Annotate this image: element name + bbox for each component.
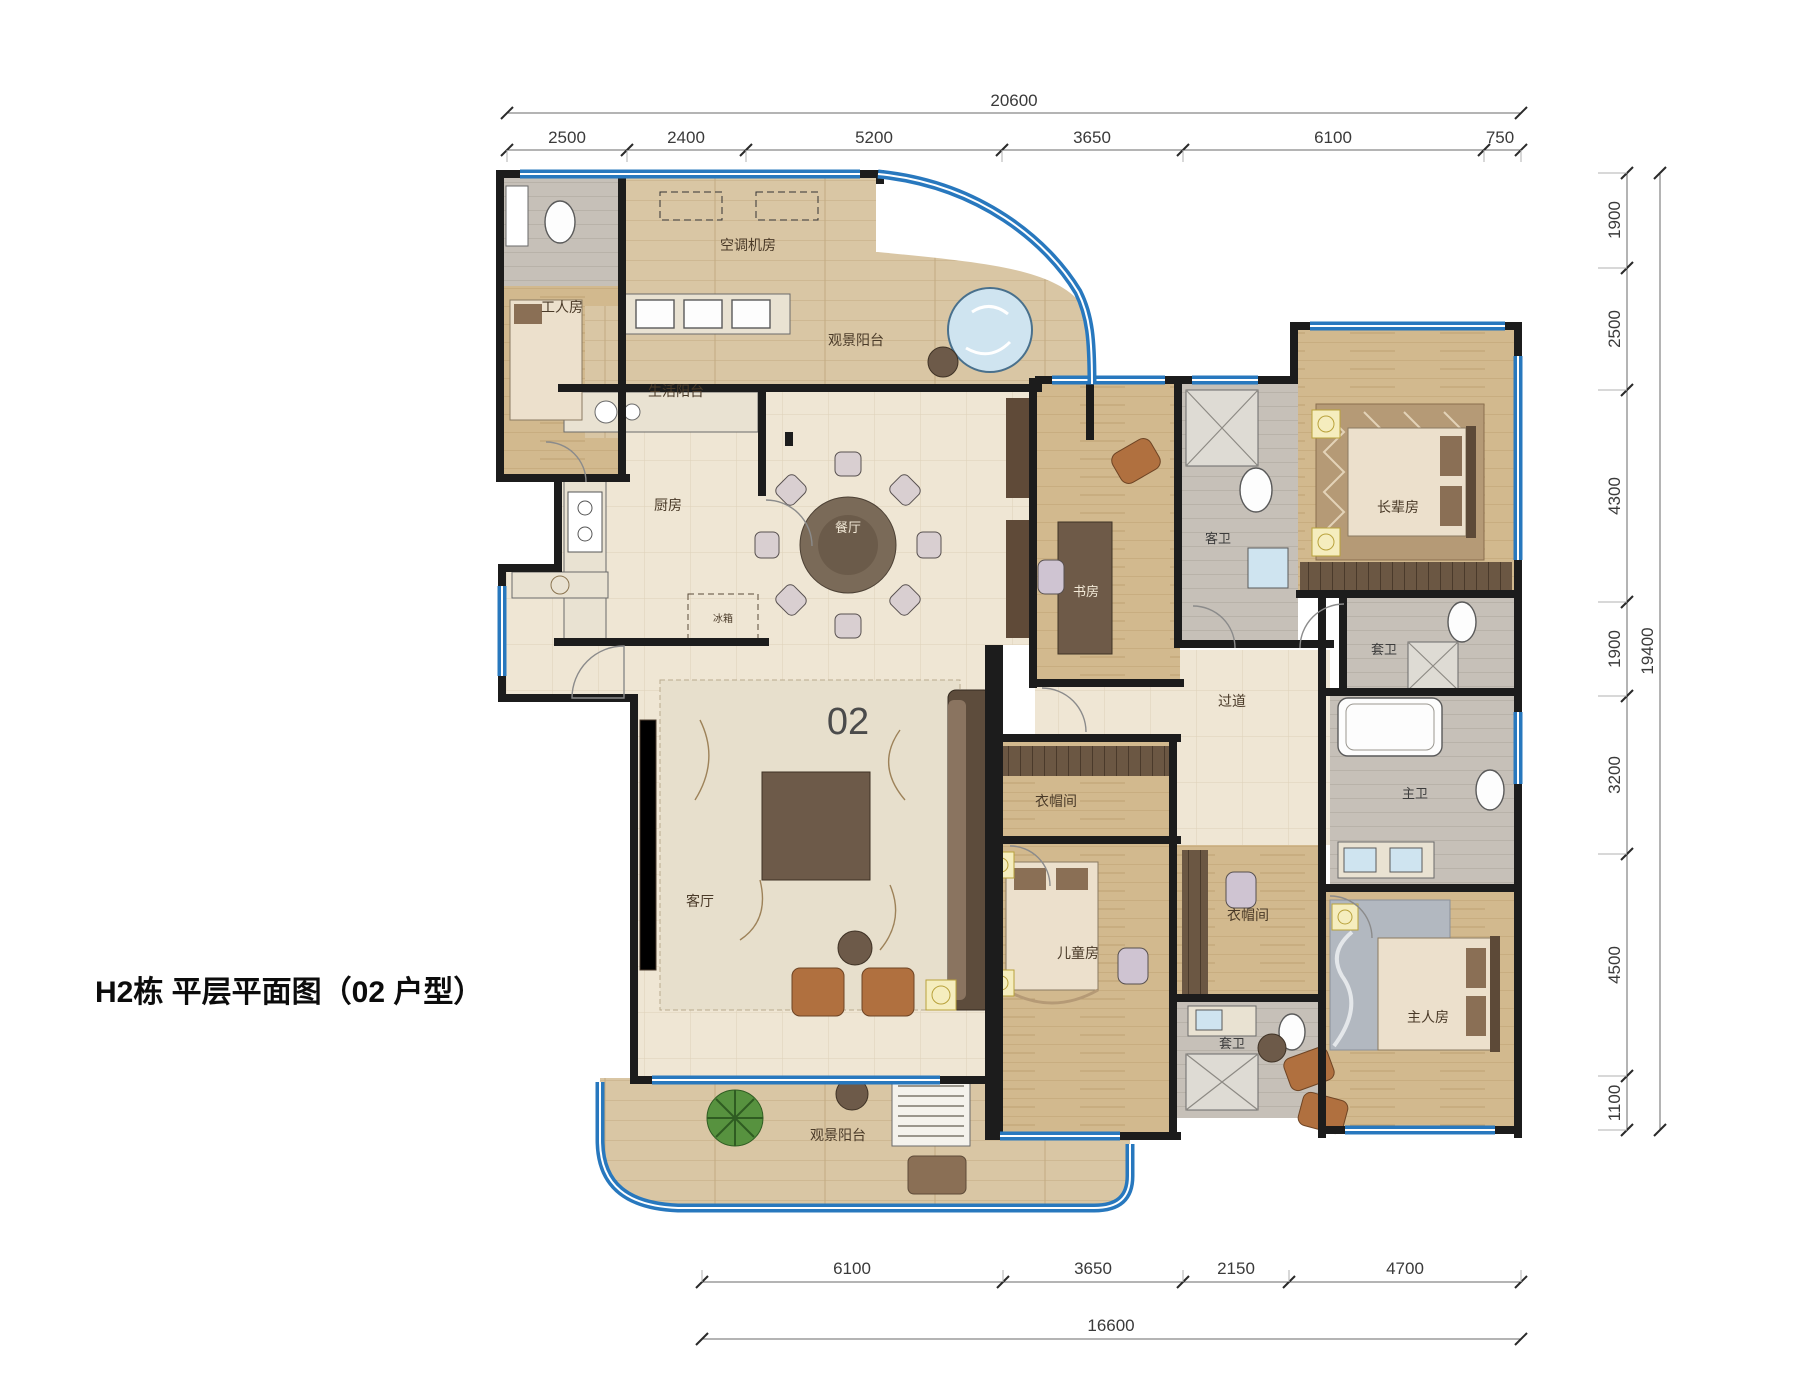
elder-wardrobe [1300, 562, 1512, 592]
label-view-balcony-bottom: 观景阳台 [810, 1127, 866, 1143]
elder-headboard [1466, 426, 1476, 538]
label-cloakroom-south: 衣帽间 [1227, 907, 1269, 923]
master-headboard [1490, 936, 1500, 1052]
label-elder-room: 长辈房 [1377, 499, 1419, 515]
label-ac-room: 空调机房 [720, 237, 776, 253]
dim-bottom-total: 16600 [1087, 1316, 1134, 1335]
elder-pillow-2 [1440, 486, 1462, 526]
desk-chair [1038, 560, 1064, 594]
label-service-balcony: 生活阳台 [648, 383, 704, 399]
kids-pillow-1 [1014, 868, 1046, 890]
dim-top-seg-0: 2500 [548, 128, 586, 147]
dim-bottom-seg-3: 4700 [1386, 1259, 1424, 1278]
label-living: 客厅 [686, 893, 714, 909]
master-toilet [1476, 770, 1504, 810]
master-side-table [1258, 1034, 1286, 1062]
coffee-table [762, 772, 870, 880]
label-kitchen: 厨房 [654, 497, 682, 513]
label-worker-room: 工人房 [541, 299, 583, 315]
guest-vanity [1248, 548, 1288, 588]
elder-pillow-1 [1440, 436, 1462, 476]
bathtub [1338, 698, 1442, 756]
master-pillow-1 [1466, 948, 1486, 988]
dim-right-seg-5: 4500 [1605, 946, 1624, 984]
kitchen-sink [595, 401, 617, 423]
label-guest-bath: 客卫 [1205, 531, 1231, 546]
balcony-stool [928, 347, 958, 377]
label-view-balcony-top: 观景阳台 [828, 332, 884, 348]
label-ensuite-kids: 套卫 [1219, 1036, 1245, 1051]
cloakroom-north-wardrobe [992, 746, 1170, 776]
laundry-sink-2 [684, 300, 722, 328]
kids-pillow-2 [1056, 868, 1088, 890]
label-kids-room: 儿童房 [1057, 945, 1099, 961]
master-pillow-2 [1466, 996, 1486, 1036]
spa-tub [948, 288, 1032, 372]
label-study: 书房 [1073, 584, 1099, 599]
bottom-dimension-chain: 6100 3650 2150 4700 16600 [696, 1259, 1527, 1345]
dim-top-total: 20600 [990, 91, 1037, 110]
label-ensuite-elder: 套卫 [1371, 642, 1397, 657]
dim-top-seg-4: 6100 [1314, 128, 1352, 147]
kitchen-sink-2 [624, 404, 640, 420]
laundry-sink-1 [636, 300, 674, 328]
dim-bottom-seg-0: 6100 [833, 1259, 871, 1278]
tv-cabinet [640, 720, 656, 970]
dining-cabinet-2 [1006, 520, 1032, 638]
label-master-bath: 主卫 [1402, 786, 1428, 801]
elder-ensuite-toilet [1448, 602, 1476, 642]
label-master-room: 主人房 [1407, 1009, 1449, 1025]
armchair-1 [792, 968, 844, 1016]
label-cloakroom-north: 衣帽间 [1035, 793, 1077, 809]
dim-bottom-seg-1: 3650 [1074, 1259, 1112, 1278]
unit-number: 02 [827, 701, 869, 743]
label-corridor: 过道 [1218, 693, 1246, 709]
deck-lounge [908, 1156, 966, 1194]
dim-top-seg-2: 5200 [855, 128, 893, 147]
dim-bottom-seg-2: 2150 [1217, 1259, 1255, 1278]
cloakroom-south-wardrobe [1182, 850, 1208, 996]
side-table [838, 931, 872, 965]
label-fridge: 冰箱 [713, 612, 733, 625]
dining-cabinet-1 [1006, 398, 1032, 498]
dim-right-seg-1: 2500 [1605, 310, 1624, 348]
dim-right-seg-4: 3200 [1605, 756, 1624, 794]
worker-bath-shelf [506, 186, 528, 246]
worker-toilet [545, 201, 575, 243]
balcony-plant [707, 1090, 763, 1146]
page-title: H2栋 平层平面图（02 户型） [95, 975, 483, 1009]
floorplan-drawing: 工人房 空调机房 生活阳台 观景阳台 厨房 冰箱 餐厅 书房 客卫 长辈房 套卫… [0, 0, 1808, 1388]
dim-right-seg-0: 1900 [1605, 201, 1624, 239]
dim-top-seg-1: 2400 [667, 128, 705, 147]
guest-toilet [1240, 468, 1272, 512]
kids-chair [1118, 948, 1148, 984]
laundry-sink-3 [732, 300, 770, 328]
label-dining: 餐厅 [835, 520, 861, 535]
floorplan-page: 工人房 空调机房 生活阳台 观景阳台 厨房 冰箱 餐厅 书房 客卫 长辈房 套卫… [0, 0, 1808, 1388]
cloakroom-chair [1226, 872, 1256, 908]
right-dimension-chain: 1900 2500 4300 1900 3200 4500 1100 19400 [1598, 167, 1666, 1136]
top-dimension-chain: 20600 2500 2400 5200 3650 6100 750 [501, 91, 1527, 162]
sofa-cushions [948, 700, 966, 1000]
dim-top-seg-3: 3650 [1073, 128, 1111, 147]
dim-right-seg-2: 4300 [1605, 477, 1624, 515]
dim-right-seg-3: 1900 [1605, 630, 1624, 668]
armchair-2 [862, 968, 914, 1016]
dim-right-seg-6: 1100 [1605, 1085, 1624, 1122]
dim-right-total: 19400 [1638, 627, 1657, 674]
